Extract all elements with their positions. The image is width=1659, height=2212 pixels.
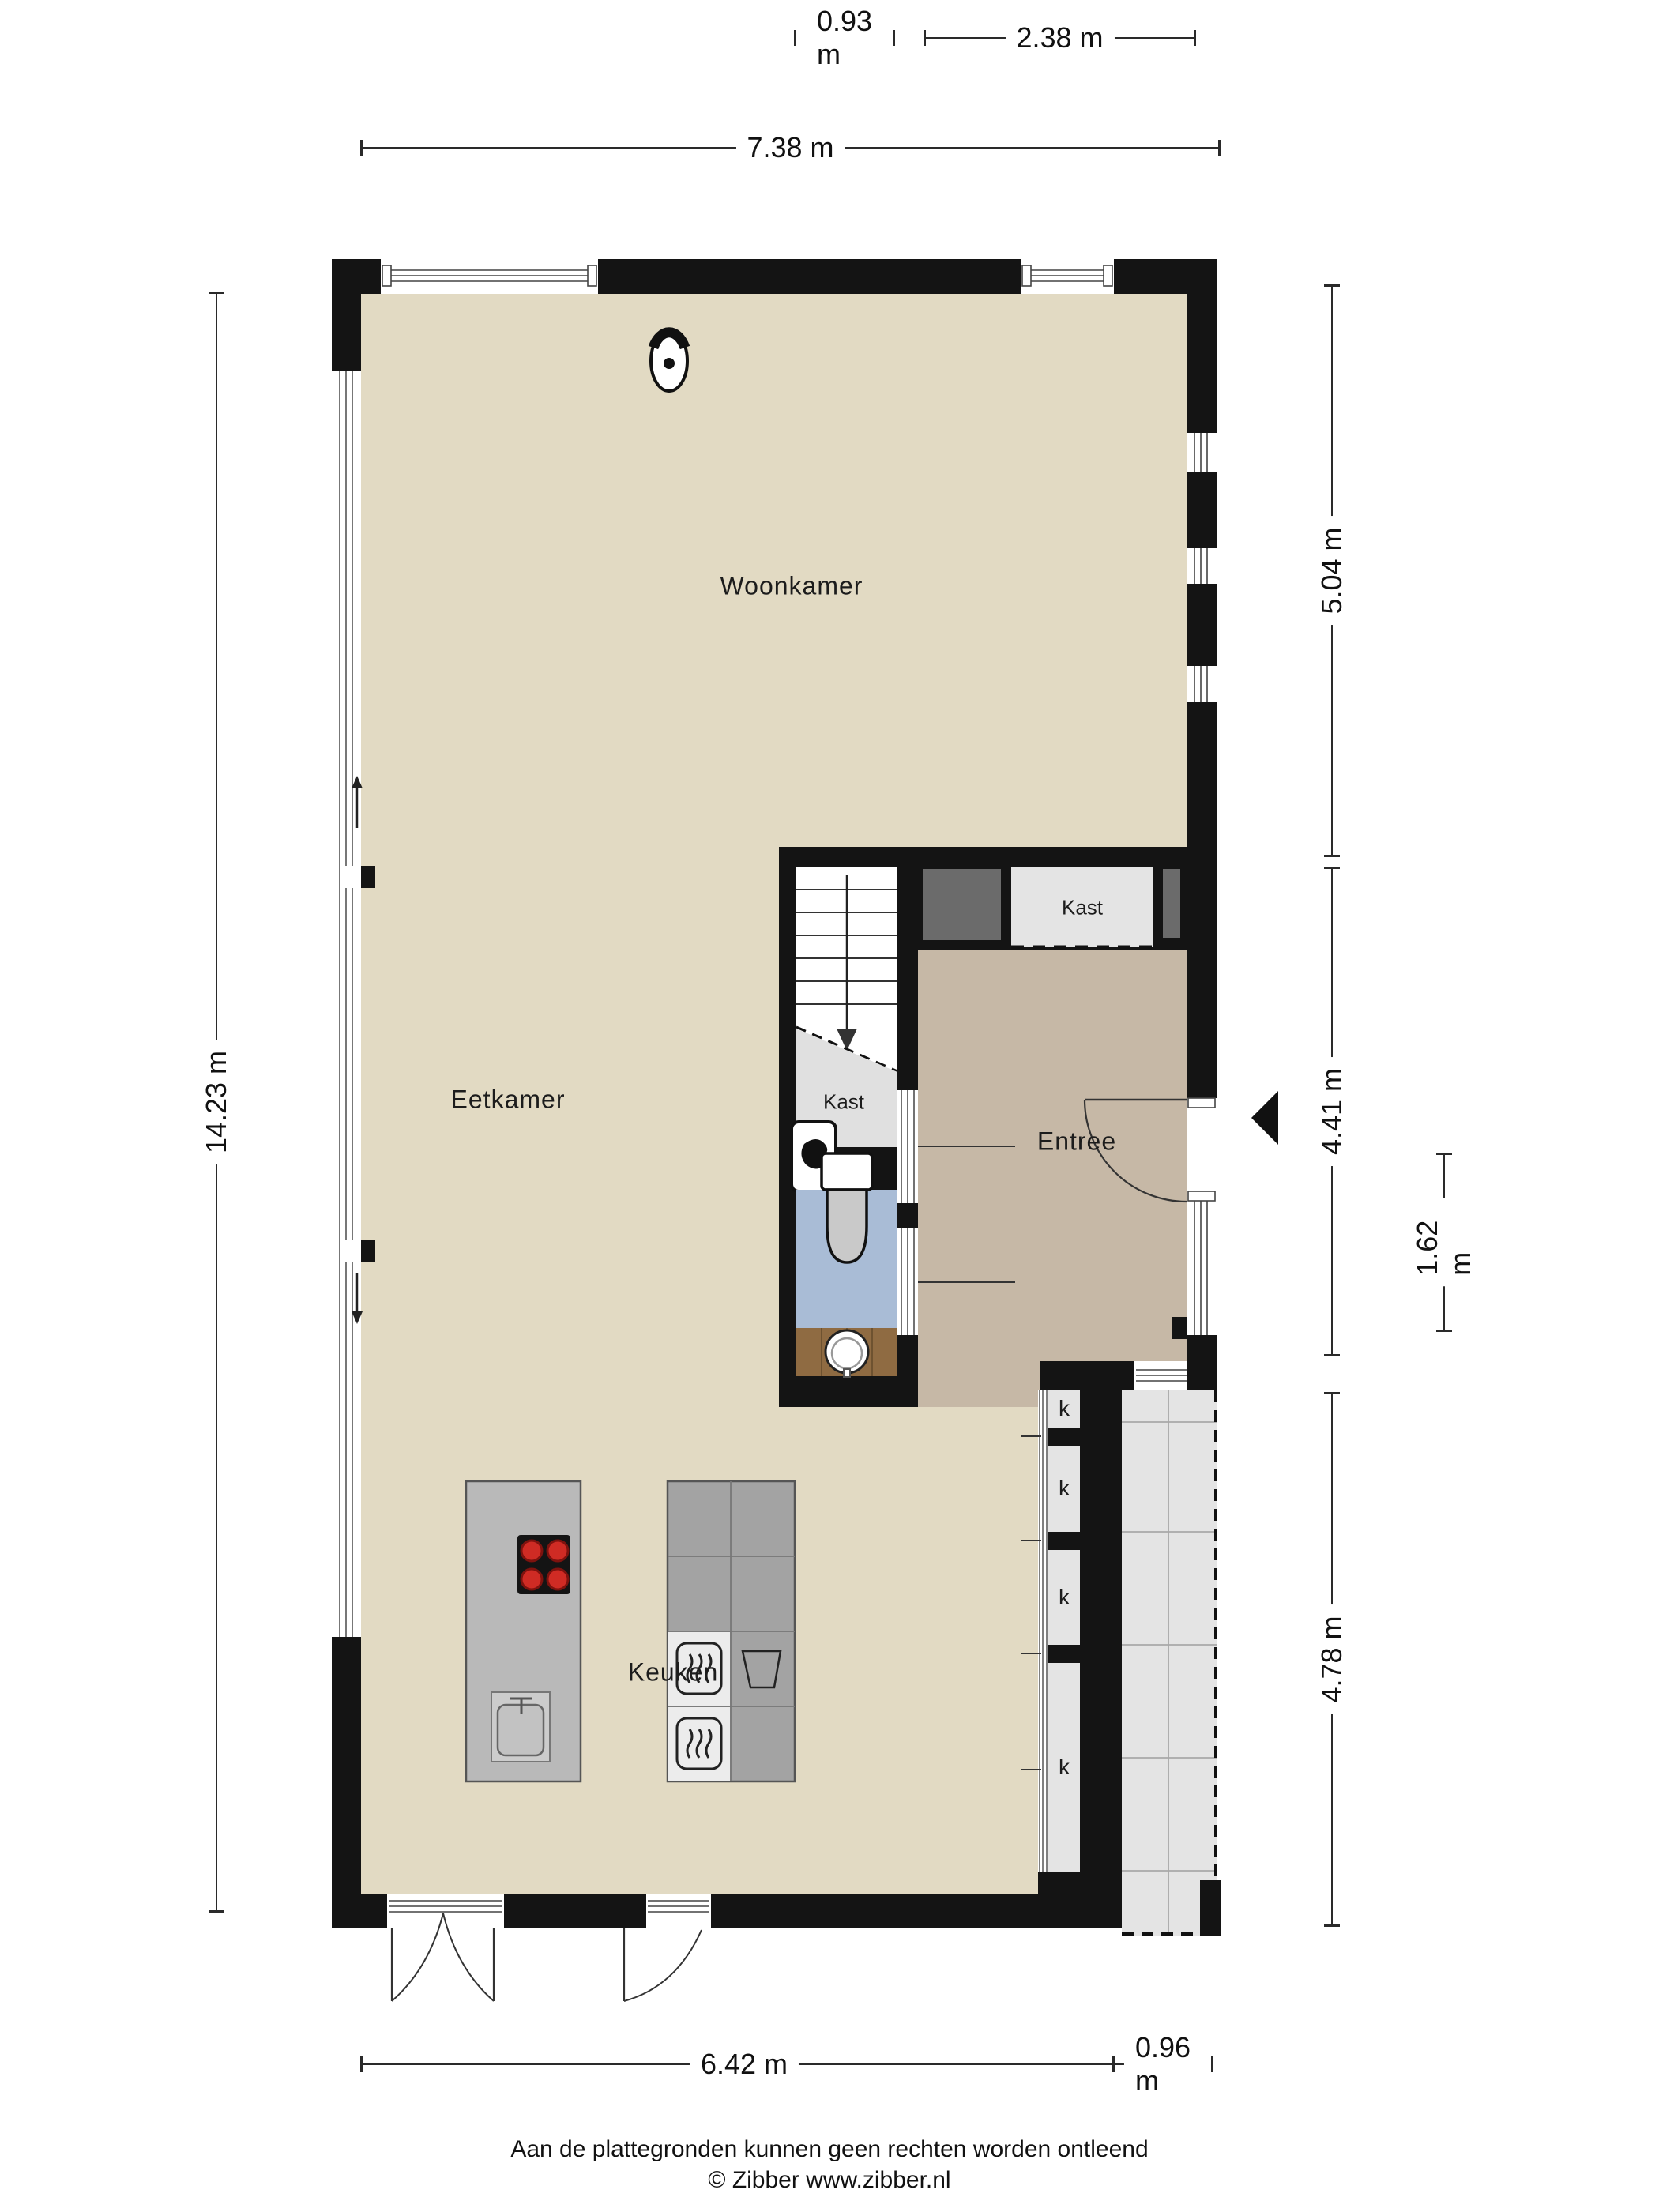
terrace-floor (1122, 1390, 1217, 1935)
shaft-gray-right (1163, 869, 1180, 938)
window-top-right (1021, 259, 1114, 294)
kitchen-counter (668, 1481, 795, 1781)
footer-disclaimer: Aan de plattegronden kunnen geen rechten… (0, 2136, 1659, 2163)
room-label-keuken: Keuken (628, 1658, 719, 1687)
room-label-kast-under-stairs: Kast (823, 1090, 864, 1115)
cupboard-label-1: k (1059, 1396, 1070, 1421)
footer-copyright: © Zibber www.zibber.nl (0, 2167, 1659, 2194)
floor-cupboards (1048, 1390, 1080, 1872)
room-label-woonkamer: Woonkamer (720, 572, 863, 601)
entrance-arrow-icon (1251, 1091, 1278, 1145)
window-wall-left (335, 371, 361, 1637)
cupboard-label-3: k (1059, 1585, 1070, 1610)
toilet-tank-icon (822, 1153, 872, 1190)
terrace (1122, 1361, 1221, 1935)
single-door-opening (646, 1894, 711, 1928)
kitchen-island (466, 1481, 581, 1781)
cupboard-label-4: k (1059, 1755, 1070, 1780)
front-door-opening (1187, 1098, 1217, 1201)
single-door-arc (624, 1930, 702, 2001)
window-right-3 (1187, 666, 1217, 702)
room-label-entree: Entree (1037, 1127, 1116, 1157)
room-label-eetkamer: Eetkamer (451, 1085, 566, 1115)
shaft-gray (923, 869, 1001, 940)
window-entree (1187, 1201, 1217, 1335)
terrace-wall-stub (1200, 1880, 1221, 1935)
window-right-2 (1187, 548, 1217, 584)
cupboard-label-2: k (1059, 1476, 1070, 1501)
window-top-left (381, 259, 598, 294)
toilet-bowl-icon (827, 1190, 867, 1262)
floorplan-page: { "floorplan": { "rooms": { "woonkamer":… (0, 0, 1659, 2212)
room-label-kast-upper: Kast (1062, 896, 1103, 920)
window-right-1 (1187, 433, 1217, 472)
